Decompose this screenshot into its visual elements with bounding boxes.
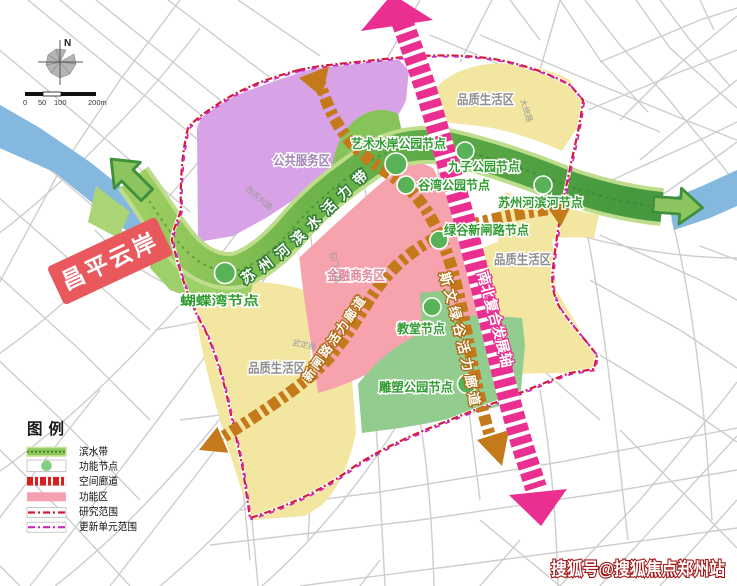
svg-text:九子公园节点: 九子公园节点	[447, 159, 520, 174]
svg-text:苏州河滨河节点: 苏州河滨河节点	[498, 195, 583, 210]
svg-text:艺术水岸公园节点: 艺术水岸公园节点	[351, 136, 446, 151]
svg-text:品质生活区: 品质生活区	[494, 252, 551, 267]
svg-text:滨水带: 滨水带	[79, 445, 108, 458]
svg-text:功能区: 功能区	[79, 490, 108, 503]
svg-text:空间廊道: 空间廊道	[79, 475, 118, 488]
svg-text:公共服务区: 公共服务区	[273, 153, 330, 168]
svg-text:50: 50	[38, 98, 46, 107]
svg-text:品质生活区: 品质生活区	[457, 92, 514, 107]
svg-text:更新单元范围: 更新单元范围	[79, 520, 137, 533]
svg-text:图例: 图例	[27, 419, 70, 438]
svg-text:功能节点: 功能节点	[79, 460, 118, 473]
svg-text:谷湾公园节点: 谷湾公园节点	[418, 178, 490, 193]
svg-text:0: 0	[23, 98, 27, 107]
svg-text:100: 100	[54, 98, 67, 107]
svg-text:200m: 200m	[88, 98, 107, 107]
svg-text:品质生活区: 品质生活区	[248, 361, 305, 376]
svg-text:教堂节点: 教堂节点	[396, 321, 445, 336]
svg-text:研究范围: 研究范围	[79, 505, 118, 518]
svg-text:N: N	[64, 38, 71, 49]
svg-text:蝴蝶湾节点: 蝴蝶湾节点	[180, 293, 260, 308]
svg-text:雕塑公园节点: 雕塑公园节点	[379, 380, 453, 395]
svg-text:绿谷新闸路节点: 绿谷新闸路节点	[444, 223, 529, 238]
svg-text:搜狐号@搜狐焦点郑州站: 搜狐号@搜狐焦点郑州站	[551, 559, 725, 579]
